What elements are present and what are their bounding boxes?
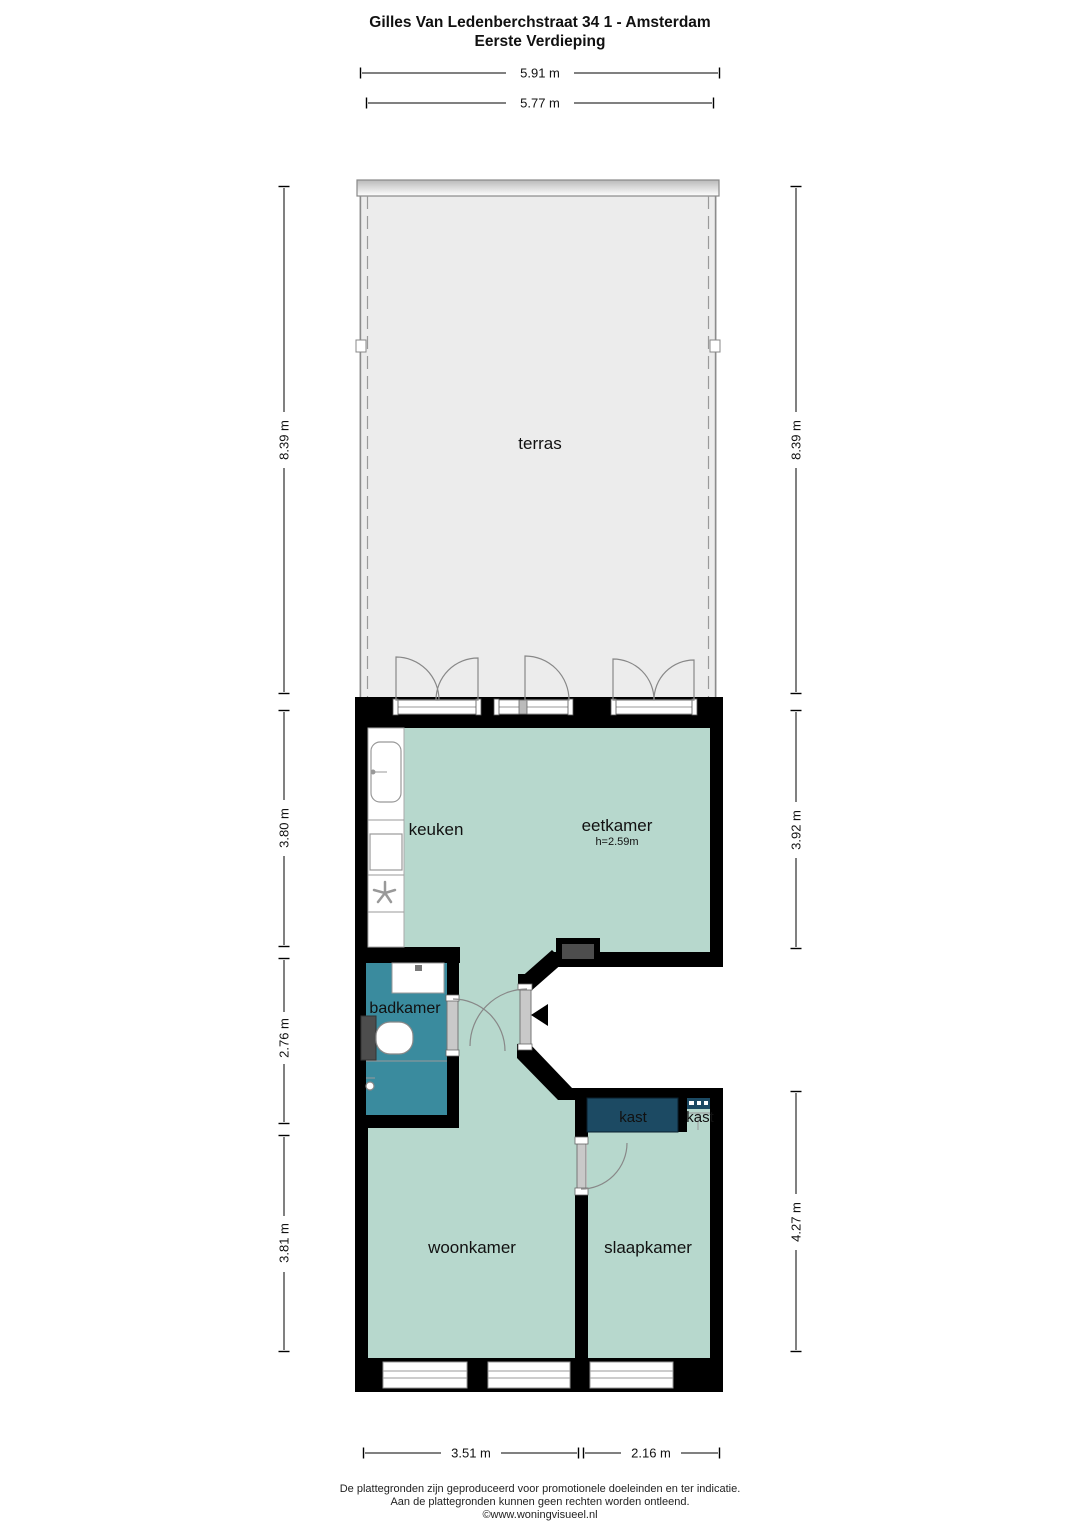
wall-right-upper <box>710 697 723 960</box>
toilet-cistern <box>361 1016 376 1060</box>
floorplan-canvas: terras keuken eetkamer h=2.59m badkamer … <box>0 0 1080 1527</box>
closet-small-shelf-dash <box>689 1101 694 1105</box>
washbasin-faucet-icon <box>415 965 422 971</box>
bathroom-door-jamb-top <box>446 995 459 1001</box>
page-subtitle: Eerste Verdieping <box>475 33 606 50</box>
wall-right-lower <box>710 1088 723 1392</box>
dim-bottom-woonkamer: 3.51 m <box>451 1446 491 1461</box>
diningroom-height-label: h=2.59m <box>595 836 638 848</box>
dim-bottom-slaapkamer: 2.16 m <box>631 1446 671 1461</box>
terrace-rail-joint-right <box>710 340 720 352</box>
page-title: Gilles Van Ledenberchstraat 34 1 - Amste… <box>369 14 710 31</box>
entrance-alcove <box>531 960 723 1094</box>
bathroom-label: badkamer <box>369 1000 441 1017</box>
closet-large-label: kast <box>619 1109 647 1126</box>
front-door-jamb-bottom <box>518 1044 532 1050</box>
closet-small-shelf-dash <box>704 1101 708 1105</box>
terrace-rail-joint-left <box>356 340 366 352</box>
footer-disclaimer-2: Aan de plattegronden kunnen geen rechten… <box>390 1496 689 1508</box>
kitchen-counter <box>368 728 404 947</box>
terrace-top-railing <box>357 180 719 196</box>
shower-head-icon <box>366 1082 374 1090</box>
dim-left-terras: 8.39 m <box>277 420 292 460</box>
wall-bathroom-right-lower <box>447 1050 459 1117</box>
radiator <box>562 944 594 959</box>
terrace-openings <box>393 699 697 715</box>
bedroom-door-jamb-top <box>575 1137 588 1144</box>
toilet-bowl <box>376 1022 413 1054</box>
dim-right-eetkamer: 3.92 m <box>789 810 804 850</box>
wall-bedroom-left-lower <box>575 1189 588 1362</box>
dim-top-outer: 5.91 m <box>520 66 560 81</box>
dim-left-keuken: 3.80 m <box>277 808 292 848</box>
wall-bedroom-left-upper <box>575 1088 588 1143</box>
kitchen-dining-floor <box>368 728 710 954</box>
footer-copyright: ©www.woningvisueel.nl <box>482 1509 597 1521</box>
front-door-leaf <box>520 988 531 1046</box>
wall-bathroom-bottom <box>355 1115 459 1128</box>
footer-disclaimer-1: De plattegronden zijn geproduceerd voor … <box>340 1483 741 1495</box>
bathroom-door-leaf <box>447 999 458 1051</box>
bedroom-door-leaf <box>577 1143 586 1189</box>
closet-small-shelf-dash <box>697 1101 701 1105</box>
kitchen-appliance <box>370 834 402 870</box>
bedroom-floor <box>587 1098 710 1362</box>
bottom-windows <box>383 1362 673 1388</box>
diningroom-label: eetkamer <box>582 816 653 835</box>
wall-bathroom-right-upper <box>447 963 459 999</box>
closet-small-label: kast <box>686 1109 714 1126</box>
dim-left-badkamer: 2.76 m <box>277 1018 292 1058</box>
wall-bathroom-top <box>355 947 460 963</box>
dim-right-terras: 8.39 m <box>789 420 804 460</box>
bathroom-door-jamb-bottom <box>446 1050 459 1056</box>
livingroom-label: woonkamer <box>427 1238 516 1257</box>
bedroom-label: slaapkamer <box>604 1238 692 1257</box>
dim-right-slaapkamer: 4.27 m <box>789 1202 804 1242</box>
terrace-label: terras <box>518 434 561 453</box>
dim-left-woonkamer: 3.81 m <box>277 1223 292 1263</box>
dim-top-inner: 5.77 m <box>520 96 560 111</box>
kitchen-label: keuken <box>409 820 464 839</box>
